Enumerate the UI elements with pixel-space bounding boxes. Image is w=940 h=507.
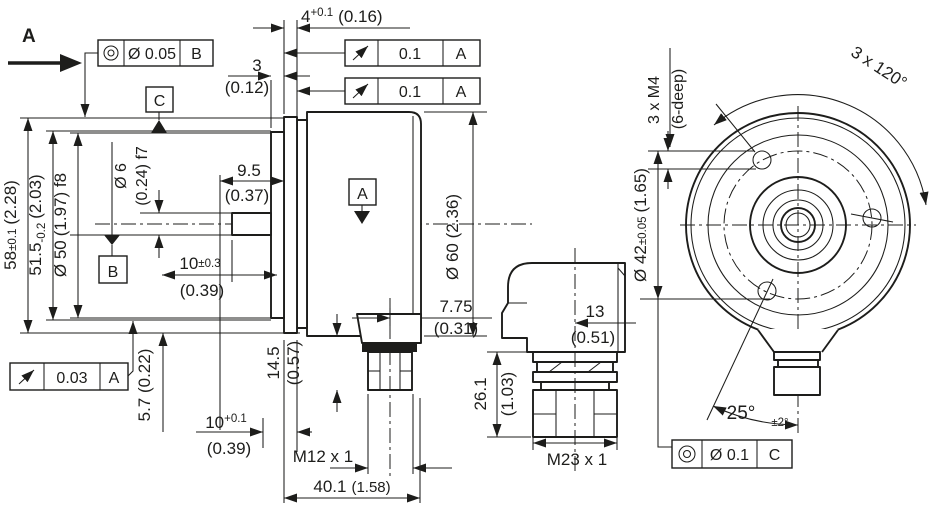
svg-text:14.5: 14.5 xyxy=(264,346,283,379)
runout-2-value: 0.1 xyxy=(399,84,421,101)
view-direction-arrow-icon xyxy=(8,54,82,72)
dim-shaft-diameter-inch: (0.24) f7 xyxy=(134,146,151,206)
face-view: 3 x 120° 3 x M4 (6-deep) Ø 42±0.05(1.65) xyxy=(631,42,926,468)
runout-1-value: 0.1 xyxy=(399,46,421,63)
svg-text:4+0.1(0.16): 4+0.1(0.16) xyxy=(301,7,383,26)
dim-collar-diameter: Ø 50(1.97) f8 xyxy=(51,133,78,318)
runout-frame-2: 0.1 A xyxy=(297,78,480,104)
svg-text:7.75: 7.75 xyxy=(439,297,472,316)
dim-body-length: 40.1(1.58) xyxy=(284,477,420,498)
svg-text:3: 3 xyxy=(252,56,261,75)
dim-screw-offset: 5.7 (0.22) xyxy=(135,333,163,432)
svg-text:(0.39): (0.39) xyxy=(180,281,224,300)
concentricity-right-datum: C xyxy=(769,447,781,464)
svg-text:(0.57): (0.57) xyxy=(284,341,303,385)
svg-text:Ø 50(1.97) f8: Ø 50(1.97) f8 xyxy=(51,173,70,277)
view-direction-label: A xyxy=(22,26,36,47)
svg-text:51.5-0.2(2.03): 51.5-0.2(2.03) xyxy=(26,174,48,275)
svg-text:(0.37): (0.37) xyxy=(225,186,269,205)
dim-shaft-diameter-value: Ø 6 xyxy=(113,163,130,189)
technical-drawing-canvas: A xyxy=(0,0,940,507)
datum-c: C xyxy=(146,87,173,133)
datum-c-label: C xyxy=(154,93,166,110)
svg-text:(0.39): (0.39) xyxy=(207,439,251,458)
m23-connector-view: 13 (0.51) 26.1 (1.03) M23 x 1 xyxy=(471,248,636,472)
svg-text:(0.31): (0.31) xyxy=(434,319,478,338)
svg-text:40.1(1.58): 40.1(1.58) xyxy=(313,477,390,496)
svg-text:M12 x 1: M12 x 1 xyxy=(293,447,353,466)
svg-text:26.1: 26.1 xyxy=(471,377,490,410)
runout-1-datum: A xyxy=(456,46,467,63)
encoder-side-outline xyxy=(232,112,421,336)
dim-fit-diameter: 51.5-0.2(2.03) xyxy=(26,131,53,320)
runout-frame-1: 0.1 A xyxy=(284,40,480,66)
runout-2-datum: A xyxy=(456,84,467,101)
svg-text:Ø 60 (2.36): Ø 60 (2.36) xyxy=(443,194,462,280)
svg-text:(0.51): (0.51) xyxy=(571,328,615,347)
concentricity-right-value: Ø 0.1 xyxy=(710,447,749,464)
face-connector-outline xyxy=(758,329,838,395)
dim-thread-m23: M23 x 1 xyxy=(533,443,617,469)
svg-text:Ø 42±0.05(1.65): Ø 42±0.05(1.65) xyxy=(631,168,650,282)
svg-text:(1.03): (1.03) xyxy=(498,372,517,416)
concentricity-top-value: Ø 0.05 xyxy=(128,46,176,63)
svg-text:13: 13 xyxy=(586,302,605,321)
svg-text:3 x 120°: 3 x 120° xyxy=(848,42,911,92)
dim-flange-thickness: 4+0.1(0.16) xyxy=(253,7,410,28)
svg-text:25°: 25° xyxy=(727,403,756,424)
m12-connector-outline xyxy=(357,314,421,390)
concentricity-top-datum: B xyxy=(191,46,202,63)
dim-thread-m12: M12 x 1 xyxy=(293,447,452,468)
datum-a-label: A xyxy=(357,186,368,203)
svg-text:(0.12): (0.12) xyxy=(225,78,269,97)
datum-b-label: B xyxy=(108,264,119,281)
svg-text:10±0.3: 10±0.3 xyxy=(179,254,220,273)
svg-text:58±0.1(2.28): 58±0.1(2.28) xyxy=(1,180,20,270)
dim-connector-length: 26.1 (1.03) xyxy=(471,352,517,437)
runout-bottom-value: 0.03 xyxy=(56,370,87,387)
dim-flange-diameter: 58±0.1(2.28) xyxy=(1,118,28,333)
svg-text:±2°: ±2° xyxy=(771,417,788,429)
runout-bottom-datum: A xyxy=(109,370,120,387)
svg-text:M23 x 1: M23 x 1 xyxy=(547,450,607,469)
svg-text:9.5: 9.5 xyxy=(237,161,261,180)
svg-text:10+0.1: 10+0.1 xyxy=(205,413,247,432)
svg-text:3 x M4: 3 x M4 xyxy=(646,76,663,124)
svg-text:5.7 (0.22): 5.7 (0.22) xyxy=(135,349,154,422)
svg-text:(6-deep): (6-deep) xyxy=(670,69,687,129)
technical-drawing-page: A xyxy=(0,0,940,507)
dim-hole-pattern: 3 x 120° xyxy=(714,42,926,205)
side-view: A xyxy=(1,7,532,503)
concentricity-frame-right: Ø 0.1 C xyxy=(672,440,792,468)
